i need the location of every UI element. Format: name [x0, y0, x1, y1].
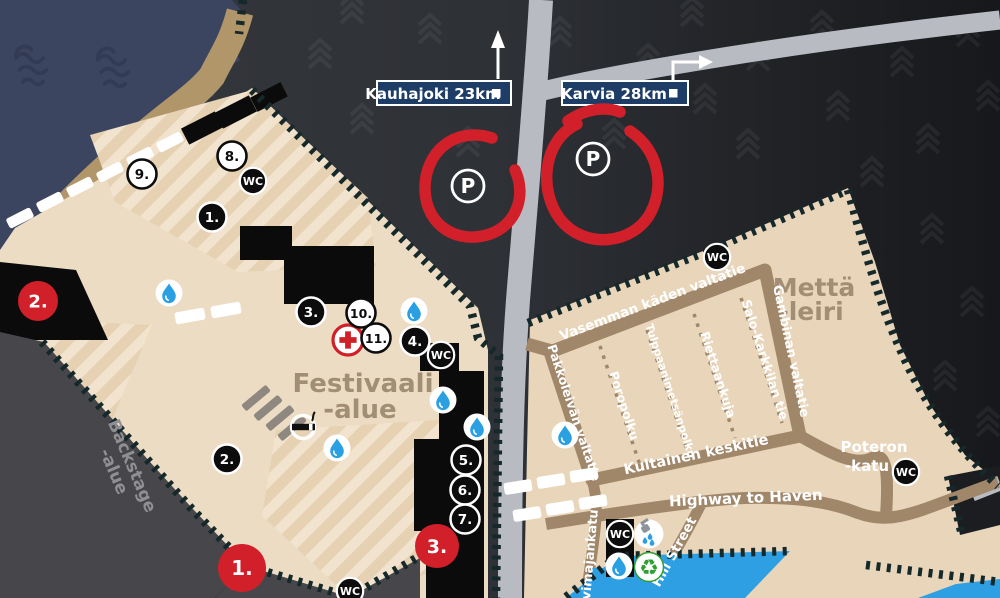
water-drop-icon — [401, 298, 428, 325]
marker-label: 3. — [427, 536, 447, 558]
marker-label: 9. — [135, 167, 150, 183]
marker-label: 2. — [220, 452, 235, 468]
marker-black-5: 5. — [452, 446, 481, 475]
first-aid-icon — [333, 325, 363, 355]
water-drop-icon — [552, 422, 579, 449]
marker-red-3: 3. — [415, 524, 459, 568]
marker-black-6: 6. — [451, 476, 480, 505]
recycling-icon: ♻ — [635, 553, 664, 582]
marker-label: 2. — [28, 292, 47, 313]
marker-label: 1. — [205, 210, 220, 226]
festival-map: WC — [0, 0, 1000, 598]
marker-white-8: 8. — [218, 142, 247, 171]
shower-icon — [635, 519, 664, 548]
marker-black-1: 1. — [198, 203, 227, 232]
marker-label: 7. — [458, 512, 473, 528]
festival-area-label-2: -alue — [323, 395, 396, 425]
marker-label: 3. — [304, 305, 319, 321]
marker-red-1: 1. — [218, 544, 266, 592]
wc-icon — [704, 244, 730, 270]
marker-black-4: 4. — [401, 327, 430, 356]
parking-label: P — [461, 174, 476, 198]
wc-icon — [607, 521, 633, 547]
parking-label: P — [586, 147, 601, 171]
wc-icon — [240, 168, 266, 194]
recycle-glyph: ♻ — [639, 556, 659, 581]
marker-label: 8. — [225, 149, 240, 165]
marker-black-2: 2. — [213, 445, 242, 474]
water-drop-icon — [156, 280, 183, 307]
water-drop-icon — [606, 553, 633, 580]
water-drop-icon — [464, 414, 491, 441]
marker-label: 10. — [350, 306, 372, 321]
street-label-poteron-1: Poteron — [840, 438, 907, 456]
marker-label: 4. — [408, 334, 423, 350]
marker-label: 1. — [231, 556, 253, 580]
marker-white-9: 9. — [128, 160, 157, 189]
marker-label: 5. — [459, 453, 474, 469]
water-drop-icon — [430, 387, 457, 414]
marker-black-3: 3. — [297, 298, 326, 327]
wc-icon — [428, 342, 454, 368]
street-label-poteron-2: -katu — [845, 457, 889, 475]
water-drop-icon — [324, 435, 351, 462]
sign-kauhajoki-label: Kauhajoki 23km — [365, 85, 501, 103]
marker-label: 11. — [365, 331, 387, 346]
marker-white-11: 11. — [362, 324, 391, 353]
marker-label: 6. — [458, 483, 473, 499]
wc-icon — [893, 459, 919, 485]
marker-red-2: 2. — [18, 281, 58, 321]
marker-black-7: 7. — [451, 505, 480, 534]
sign-karvia-label: Karvia 28km — [561, 85, 667, 103]
wc-icon — [337, 578, 363, 598]
